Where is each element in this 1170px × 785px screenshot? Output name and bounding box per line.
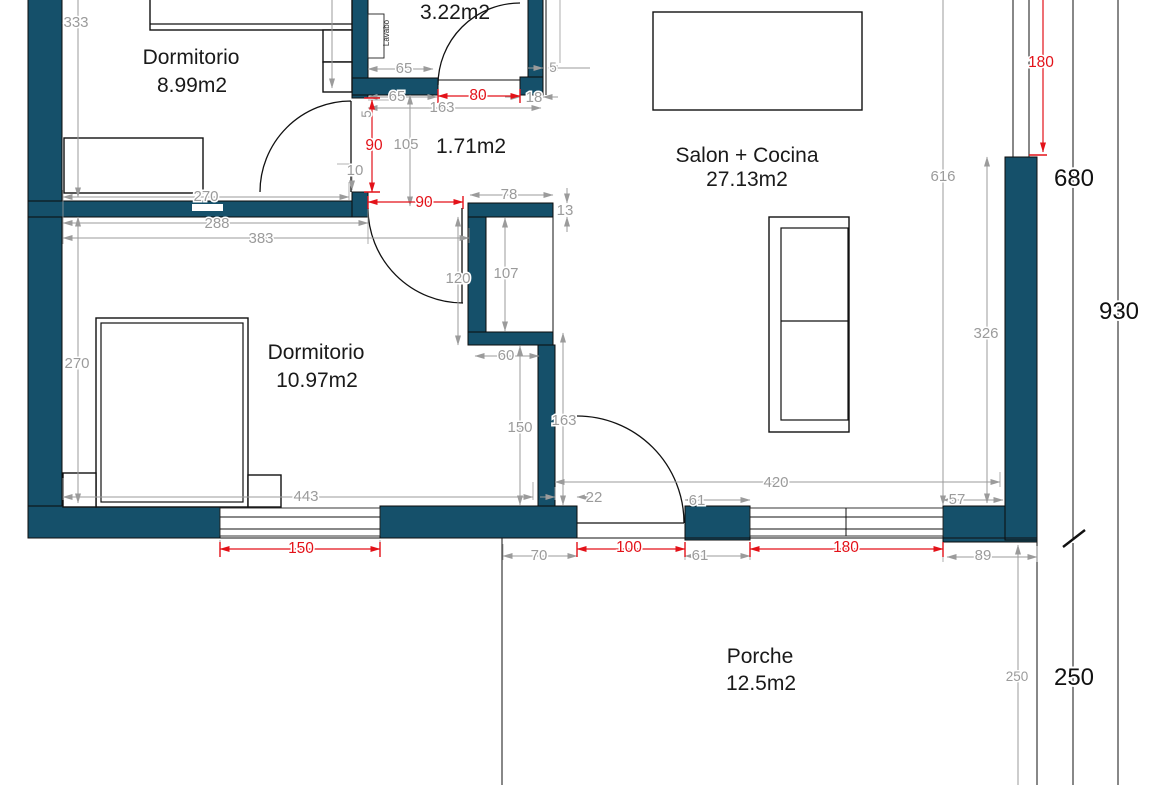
door-bedroom2: [368, 208, 463, 303]
dim-label-326: 326: [973, 325, 998, 342]
window-bedroom2: [220, 508, 380, 536]
door-entrance: [577, 416, 684, 523]
dim-label-90-vert: 90: [365, 137, 383, 154]
wall-notch: [192, 204, 223, 211]
dim-label-420: 420: [763, 474, 788, 491]
wall-south-a: [28, 506, 220, 538]
wall-bathroom-east: [528, 0, 543, 77]
wall-south-b: [380, 506, 577, 538]
room-area-bedroom1: 8.99m2: [157, 74, 227, 97]
bed-bedroom1: [150, 0, 352, 30]
nightstand-bedroom1-b: [323, 62, 352, 92]
dim-label-163-bath: 163: [429, 99, 454, 116]
fixture-label-sink: Lavabo: [382, 19, 391, 46]
table-salon: [653, 12, 862, 110]
wall-closet-top: [468, 203, 553, 217]
dim-label-250-black: 250: [1054, 664, 1094, 691]
room-label-salon: Salon + Cocina: [675, 144, 818, 167]
dim-label-150-window: 150: [288, 540, 314, 557]
dim-label-65-chain: 65: [389, 88, 406, 105]
nightstand-bedroom2-right: [248, 475, 281, 507]
wall-south-pier: [685, 506, 750, 540]
dim-label-22: 22: [586, 489, 603, 506]
room-label-porch: Porche: [727, 645, 794, 668]
floor-plan-canvas: Dormitorio 8.99m2 3.22m2 1.71m2 Salon + …: [0, 0, 1170, 785]
desk-bedroom1: [64, 138, 203, 193]
wall-exterior-right: [1005, 157, 1037, 540]
dim-label-163-wall: 163: [551, 412, 576, 429]
dim-label-13: 13: [557, 202, 574, 219]
room-area-salon: 27.13m2: [706, 168, 788, 191]
dim-label-60: 60: [498, 347, 515, 364]
dim-label-270-top: 270: [193, 188, 218, 205]
nightstand-bedroom1-a: [323, 30, 352, 62]
dim-label-150-wall: 150: [507, 419, 532, 436]
dim-label-180-right: 180: [1028, 54, 1054, 71]
dim-label-5-rotated: 5: [359, 110, 374, 118]
dim-label-680: 680: [1054, 165, 1094, 192]
dim-label-70: 70: [531, 547, 548, 564]
windows: [220, 508, 943, 536]
dim-label-383: 383: [248, 230, 273, 247]
dim-label-333: 333: [63, 14, 88, 31]
wall-closet-bottom: [468, 332, 553, 345]
room-label-bedroom2: Dormitorio: [268, 341, 365, 364]
dim-label-57: 57: [949, 491, 966, 508]
dim-label-61-bottom: 61: [692, 547, 709, 564]
wall-exterior-left: [28, 0, 62, 538]
dimension-labels-black: 680 930 250: [1054, 165, 1139, 691]
dim-label-65-top: 65: [396, 60, 413, 77]
dim-label-105: 105: [393, 136, 418, 153]
dim-label-250-gray: 250: [1006, 669, 1029, 684]
wall-bedroom1-hall-lower: [352, 192, 368, 217]
dim-label-90-horiz: 90: [415, 194, 433, 211]
dim-label-180-window: 180: [833, 539, 859, 556]
room-area-porch: 12.5m2: [726, 672, 796, 695]
dim-label-616: 616: [930, 168, 955, 185]
room-area-hall: 1.71m2: [436, 135, 506, 158]
dim-label-10: 10: [347, 162, 364, 179]
room-area-bedroom2: 10.97m2: [276, 369, 358, 392]
dim-label-89: 89: [975, 547, 992, 564]
dim-label-5-right: 5: [549, 60, 557, 75]
dim-label-288: 288: [204, 215, 229, 232]
dim-label-120: 120: [445, 270, 470, 287]
dim-label-80: 80: [469, 87, 487, 104]
dim-label-443: 443: [293, 488, 318, 505]
nightstand-bedroom2-left: [63, 473, 96, 507]
dim-label-61-top: 61: [689, 492, 706, 509]
door-bedroom1: [260, 101, 351, 192]
dim-label-107: 107: [493, 265, 518, 282]
room-area-bathroom: 3.22m2: [420, 1, 490, 24]
wall-closet-left: [468, 217, 486, 332]
room-label-bedroom1: Dormitorio: [143, 46, 240, 69]
bed-bedroom2: [96, 318, 248, 507]
dim-label-930: 930: [1099, 298, 1139, 325]
dim-label-18: 18: [526, 89, 543, 106]
dim-label-100-door: 100: [616, 539, 642, 556]
dim-label-78: 78: [501, 186, 518, 203]
dim-label-270-left: 270: [64, 355, 89, 372]
